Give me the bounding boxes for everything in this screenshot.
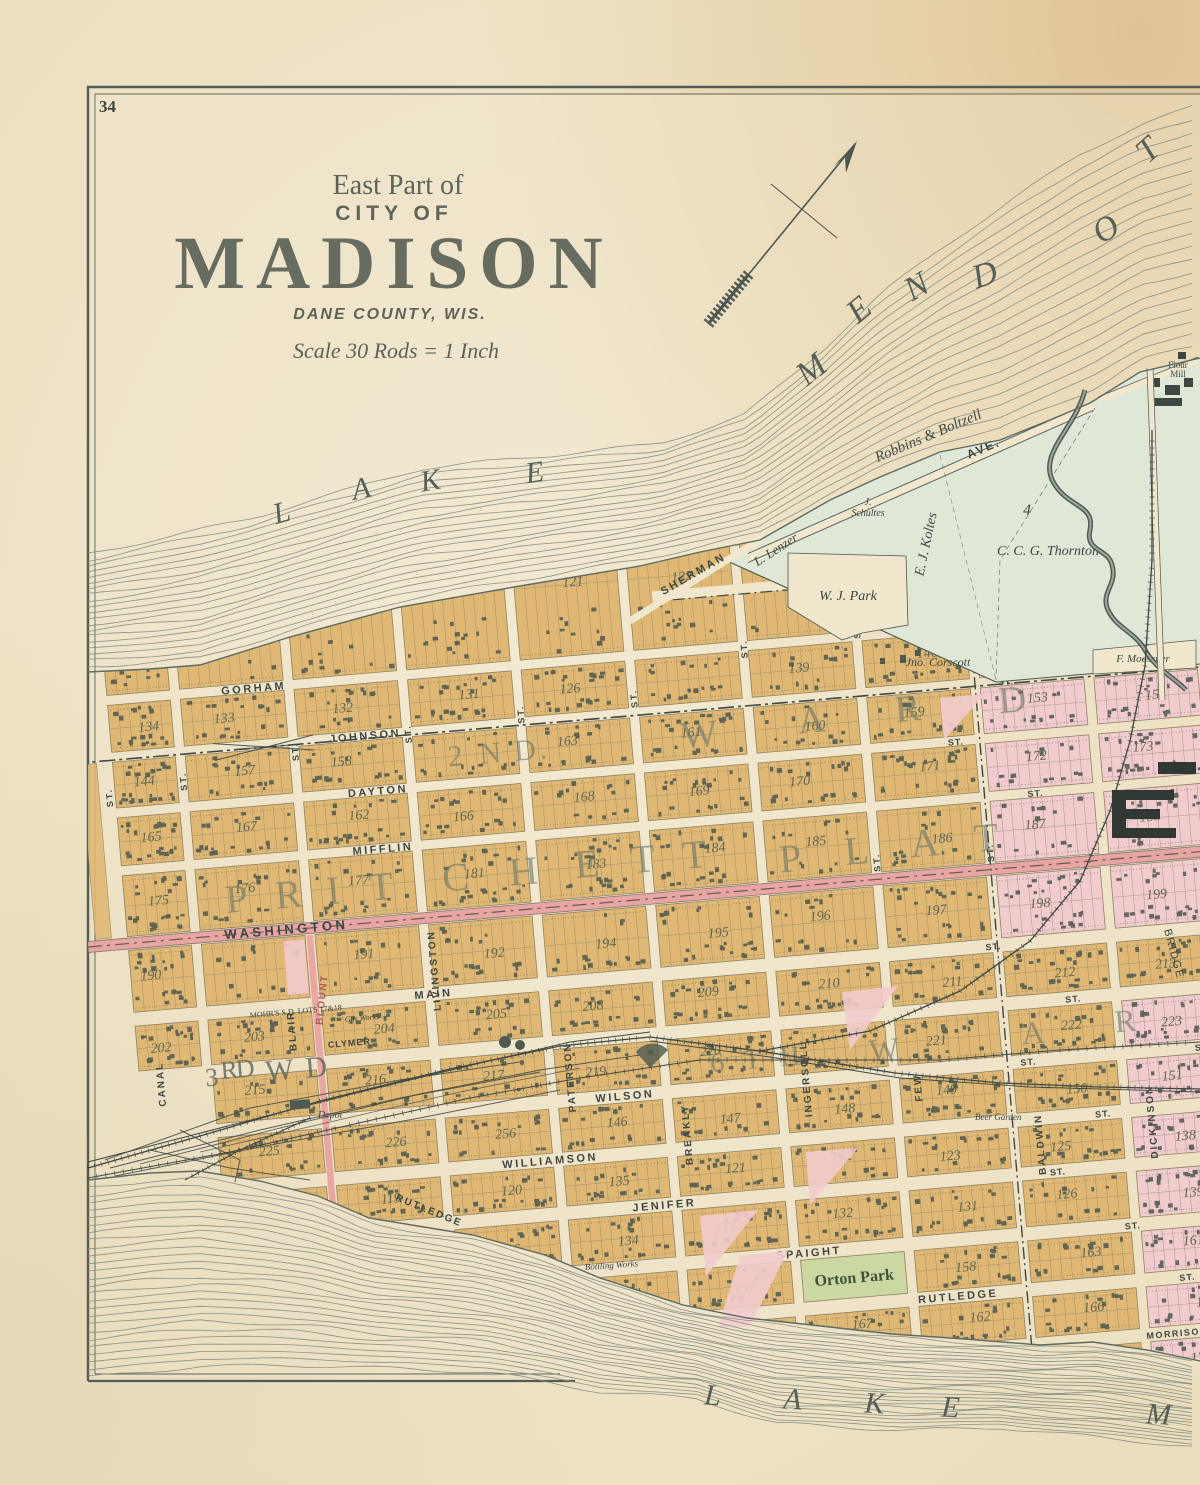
svg-text:T: T	[629, 835, 657, 882]
svg-text:131: 131	[957, 1199, 979, 1216]
svg-text:208: 208	[582, 998, 604, 1015]
svg-text:211: 211	[942, 974, 963, 991]
svg-text:L: L	[843, 827, 871, 874]
svg-text:131: 131	[458, 687, 480, 704]
svg-text:175: 175	[147, 893, 169, 910]
svg-text:203: 203	[243, 1029, 265, 1046]
svg-text:MADISON: MADISON	[174, 222, 614, 305]
svg-text:R: R	[893, 687, 922, 731]
svg-text:H: H	[507, 847, 540, 894]
svg-text:146: 146	[606, 1115, 628, 1132]
svg-text:ST.: ST.	[402, 724, 414, 744]
svg-text:210: 210	[818, 976, 840, 993]
svg-text:ST.: ST.	[1095, 1108, 1112, 1119]
svg-text:202: 202	[150, 1040, 172, 1057]
svg-text:D: D	[304, 1050, 328, 1085]
svg-text:138: 138	[1174, 1128, 1196, 1145]
svg-text:T: T	[680, 831, 708, 878]
svg-text:153: 153	[1026, 690, 1048, 707]
svg-text:T: T	[367, 863, 395, 910]
svg-text:219: 219	[585, 1064, 607, 1081]
svg-text:P: P	[777, 835, 803, 882]
svg-text:A: A	[1020, 1014, 1046, 1052]
svg-text:ST.: ST.	[985, 941, 1002, 952]
svg-text:197: 197	[925, 902, 948, 919]
svg-text:Mill: Mill	[1170, 369, 1186, 379]
svg-text:W: W	[264, 1053, 296, 1088]
svg-text:134: 134	[138, 719, 160, 736]
svg-text:ST.: ST.	[1020, 1056, 1037, 1067]
svg-text:Schultes: Schultes	[851, 508, 884, 519]
svg-text:123: 123	[939, 1148, 961, 1165]
svg-text:204: 204	[373, 1021, 395, 1038]
svg-text:135: 135	[608, 1174, 630, 1191]
svg-text:121: 121	[724, 1161, 746, 1178]
svg-text:ST.: ST.	[1027, 788, 1044, 799]
svg-text:J.: J.	[865, 497, 872, 508]
svg-text:ST.: ST.	[628, 689, 640, 709]
svg-text:199: 199	[1146, 887, 1168, 904]
svg-text:132: 132	[832, 1206, 854, 1223]
svg-text:139: 139	[1182, 1185, 1200, 1202]
svg-text:ST.: ST.	[1065, 993, 1082, 1004]
svg-text:221: 221	[925, 1033, 947, 1050]
svg-text:A: A	[796, 698, 827, 742]
svg-text:P: P	[224, 875, 250, 922]
svg-text:192: 192	[483, 945, 505, 962]
svg-text:E: E	[939, 1391, 960, 1425]
svg-text:ST.: ST.	[1124, 1220, 1141, 1231]
svg-text:120: 120	[500, 1183, 522, 1200]
svg-text:148: 148	[834, 1101, 856, 1118]
svg-text:ST.: ST.	[515, 704, 527, 724]
svg-text:ST.: ST.	[178, 771, 190, 791]
svg-text:212: 212	[1054, 965, 1076, 982]
svg-text:R: R	[1113, 1002, 1138, 1040]
svg-text:158: 158	[955, 1259, 977, 1276]
svg-text:226: 226	[385, 1135, 407, 1152]
svg-text:K: K	[863, 1386, 888, 1420]
svg-text:Scale 30 Rods = 1 Inch: Scale 30 Rods = 1 Inch	[293, 338, 499, 363]
svg-text:E: E	[573, 840, 601, 887]
svg-text:W: W	[867, 1030, 901, 1069]
svg-text:East Part of: East Part of	[333, 170, 464, 201]
svg-text:R: R	[273, 871, 304, 918]
svg-text:162: 162	[969, 1309, 991, 1326]
svg-text:167: 167	[235, 819, 258, 836]
svg-text:3: 3	[204, 1062, 219, 1092]
svg-text:185: 185	[805, 834, 827, 851]
svg-text:162: 162	[348, 808, 370, 825]
svg-text:171: 171	[919, 759, 941, 776]
svg-text:134: 134	[617, 1233, 639, 1250]
svg-text:133: 133	[213, 711, 235, 728]
svg-text:126: 126	[559, 681, 581, 698]
svg-text:C. C. G. Thornton: C. C. G. Thornton	[997, 544, 1099, 559]
svg-text:34: 34	[99, 97, 117, 116]
svg-text:166: 166	[452, 809, 474, 826]
svg-text:A: A	[780, 1382, 803, 1416]
svg-text:W. J. Park: W. J. Park	[819, 589, 878, 604]
svg-text:ST.: ST.	[1179, 1272, 1196, 1283]
svg-text:ST.: ST.	[1050, 1166, 1067, 1177]
svg-text:223: 223	[1160, 1014, 1182, 1031]
svg-text:195: 195	[707, 925, 729, 942]
svg-text:168: 168	[1196, 1294, 1200, 1311]
svg-text:M: M	[1144, 1397, 1174, 1432]
svg-text:ST.: ST.	[871, 852, 883, 872]
svg-text:Jno. Corscott: Jno. Corscott	[906, 655, 971, 669]
svg-text:Depot: Depot	[317, 1110, 343, 1121]
svg-text:205: 205	[485, 1006, 507, 1023]
svg-text:158: 158	[330, 754, 352, 771]
svg-text:196: 196	[809, 908, 831, 925]
svg-text:209: 209	[697, 984, 719, 1001]
svg-text:151: 151	[1161, 1068, 1183, 1085]
svg-text:166: 166	[1083, 1300, 1105, 1317]
svg-text:W: W	[680, 713, 719, 758]
svg-text:D: D	[235, 1053, 256, 1083]
svg-text:D: D	[513, 733, 537, 768]
svg-text:Beer Garden: Beer Garden	[975, 1112, 1022, 1122]
svg-text:ST.: ST.	[104, 788, 116, 808]
svg-text:DANE COUNTY, WIS.: DANE COUNTY, WIS.	[293, 306, 486, 323]
svg-text:2: 2	[446, 739, 464, 773]
svg-text:256: 256	[495, 1126, 517, 1143]
svg-text:132: 132	[332, 701, 354, 718]
svg-text:ST.: ST.	[1194, 1041, 1200, 1052]
svg-text:A: A	[908, 819, 941, 866]
svg-text:198: 198	[1029, 896, 1051, 913]
svg-text:C: C	[440, 853, 470, 900]
svg-text:ST.: ST.	[738, 639, 750, 659]
svg-text:6: 6	[709, 1047, 726, 1079]
svg-text:194: 194	[595, 936, 617, 953]
svg-text:165: 165	[140, 829, 162, 846]
svg-text:215: 215	[244, 1082, 266, 1099]
svg-text:L: L	[702, 1378, 722, 1412]
svg-text:161: 161	[1182, 1233, 1200, 1250]
svg-text:168: 168	[573, 789, 595, 806]
svg-text:N: N	[478, 736, 502, 771]
svg-text:ST.: ST.	[947, 736, 964, 747]
